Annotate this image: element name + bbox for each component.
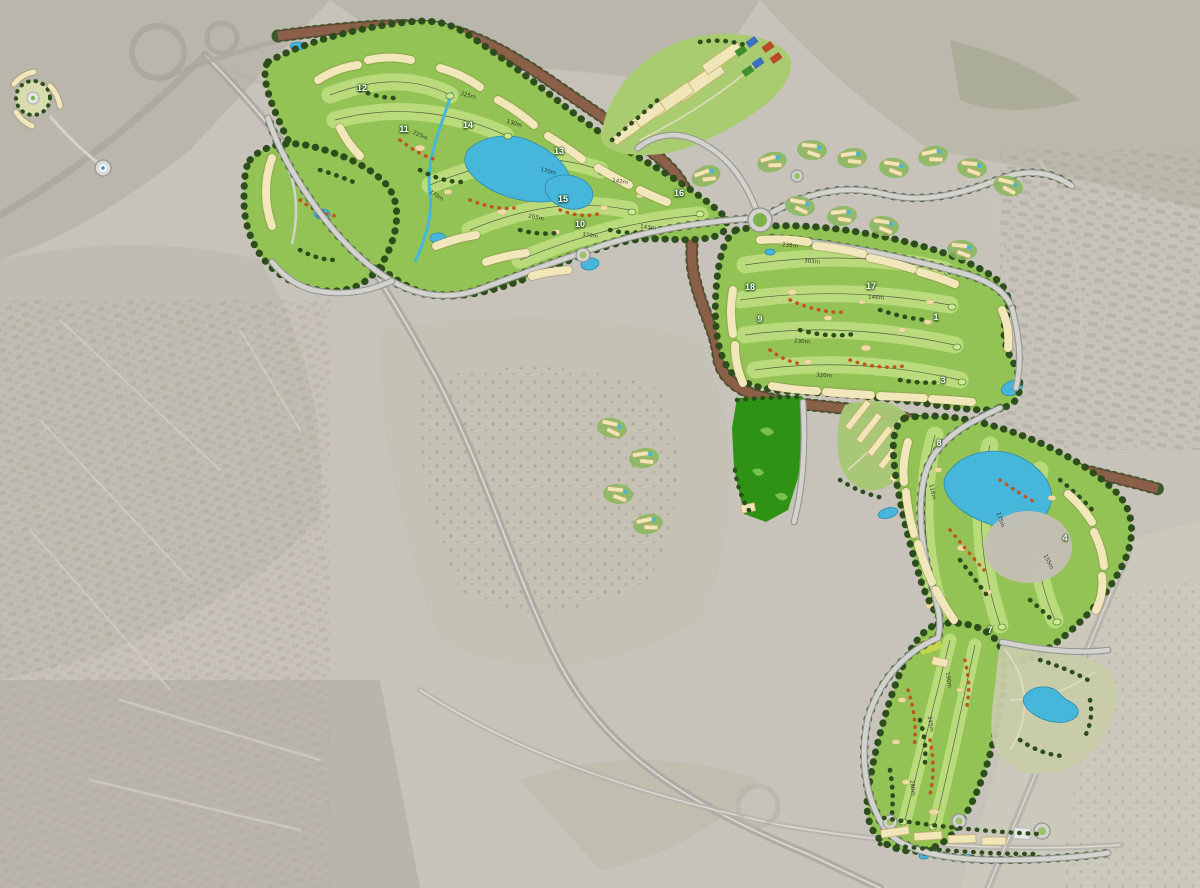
unplanned-satellite-gap — [984, 511, 1072, 583]
map-graphic — [0, 0, 1200, 888]
masterplan-map: 121114131510161817913847325m130m225m170m… — [0, 0, 1200, 888]
